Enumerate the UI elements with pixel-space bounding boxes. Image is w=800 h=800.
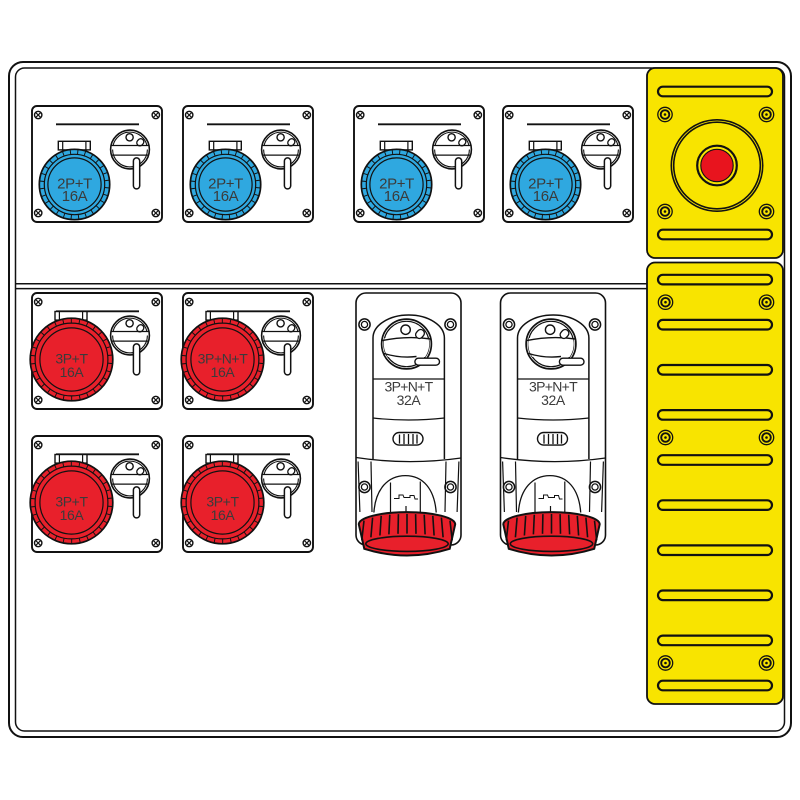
svg-text:16A: 16A <box>60 364 85 380</box>
svg-text:16A: 16A <box>211 507 236 523</box>
svg-text:16A: 16A <box>60 507 85 523</box>
svg-text:16A: 16A <box>384 188 410 205</box>
svg-text:16A: 16A <box>213 188 239 205</box>
svg-text:16A: 16A <box>533 188 559 205</box>
svg-text:16A: 16A <box>211 364 236 380</box>
svg-text:16A: 16A <box>62 188 88 205</box>
